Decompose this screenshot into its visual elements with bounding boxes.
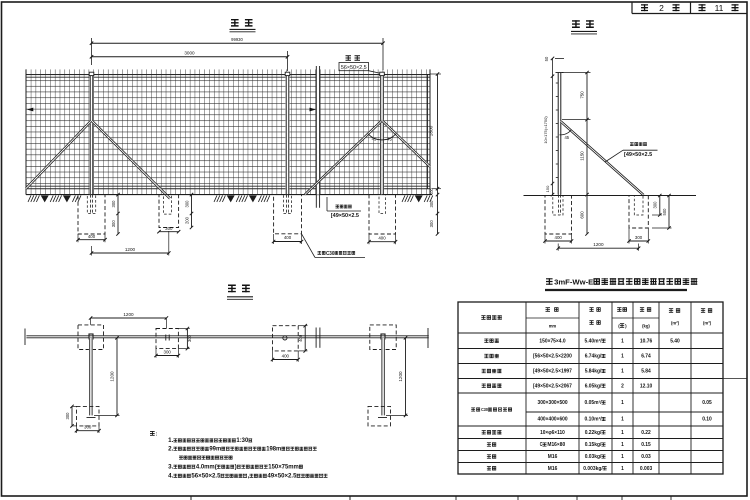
svg-text:mm: mm (549, 323, 557, 328)
svg-text:0.15: 0.15 (641, 442, 651, 448)
svg-text:[49×50×2.5: [49×50×2.5 (331, 213, 359, 219)
svg-text:99930: 99930 (231, 37, 243, 42)
svg-text:1150: 1150 (579, 151, 584, 161)
svg-text:400: 400 (378, 235, 386, 240)
svg-text:1: 1 (621, 417, 624, 423)
svg-text:11: 11 (715, 3, 724, 13)
svg-text:99m: 99m (209, 446, 221, 453)
svg-text:M16: M16 (548, 454, 558, 460)
svg-text:56×50×2.5: 56×50×2.5 (341, 65, 367, 71)
svg-text:1800: 1800 (429, 125, 435, 136)
svg-text:300: 300 (84, 425, 92, 430)
svg-text:300: 300 (635, 235, 643, 240)
svg-text:6.74kg/: 6.74kg/ (585, 354, 602, 360)
svg-text:M16×80: M16×80 (547, 442, 565, 448)
svg-text:1: 1 (621, 339, 624, 345)
svg-text:0.05: 0.05 (702, 400, 712, 406)
svg-text:6.05kg/: 6.05kg/ (585, 384, 602, 390)
svg-text:0.003kg/: 0.003kg/ (583, 466, 603, 472)
svg-text:(kg): (kg) (642, 323, 650, 328)
svg-text:45: 45 (387, 137, 392, 142)
svg-text:0.03kg/: 0.03kg/ (585, 454, 602, 460)
svg-text:300: 300 (184, 200, 189, 208)
svg-text:150×75×4.0: 150×75×4.0 (539, 339, 565, 345)
svg-text:300: 300 (111, 220, 116, 228)
svg-text:10×φ6×110: 10×φ6×110 (540, 430, 565, 436)
svg-text:1200: 1200 (125, 247, 136, 252)
svg-text:5.84kg/: 5.84kg/ (585, 369, 602, 375)
svg-text:0.10: 0.10 (702, 417, 712, 423)
svg-text:1200: 1200 (123, 312, 134, 317)
svg-text:300: 300 (429, 220, 434, 228)
svg-text:[49×50×2.5: [49×50×2.5 (624, 152, 652, 158)
svg-text:,: , (248, 473, 250, 480)
svg-text:1:30: 1:30 (236, 437, 248, 444)
svg-text:300: 300 (65, 412, 70, 420)
svg-text:1200: 1200 (398, 371, 403, 382)
svg-text:56×50×2.5: 56×50×2.5 (191, 473, 221, 480)
svg-text:0.10m³/: 0.10m³/ (585, 417, 603, 423)
svg-text:300×300×500: 300×300×500 (538, 400, 568, 406)
svg-text:12.10: 12.10 (640, 384, 653, 390)
svg-text:0.15kg/: 0.15kg/ (585, 442, 602, 448)
svg-text:4.0mm(: 4.0mm( (196, 464, 218, 471)
svg-text:400: 400 (284, 235, 292, 240)
svg-text:1: 1 (621, 442, 624, 448)
svg-text:49×50×2.5: 49×50×2.5 (267, 473, 297, 480)
svg-text:150×75mm: 150×75mm (268, 464, 299, 471)
svg-text:1: 1 (621, 430, 624, 436)
svg-text:600: 600 (579, 211, 584, 219)
svg-text:400×400×600: 400×400×600 (538, 417, 568, 423)
svg-text:[56×50×2.5×2200: [56×50×2.5×2200 (533, 354, 572, 360)
svg-text:C30: C30 (481, 407, 488, 412)
svg-text:5.40: 5.40 (670, 339, 680, 345)
svg-text:1: 1 (621, 369, 624, 375)
svg-text:400: 400 (88, 234, 96, 239)
svg-text:300: 300 (429, 200, 434, 208)
svg-text:400: 400 (282, 353, 290, 358)
svg-text:200: 200 (184, 216, 189, 224)
svg-text:1.: 1. (168, 437, 173, 444)
svg-text:100: 100 (430, 188, 434, 194)
svg-text:2: 2 (659, 3, 664, 13)
svg-text:3mF-Ww-E: 3mF-Ww-E (554, 277, 593, 286)
svg-text:1: 1 (621, 466, 624, 472)
svg-text:300: 300 (187, 334, 192, 342)
svg-text:0.05m³/: 0.05m³/ (585, 400, 603, 406)
svg-text:2.: 2. (168, 446, 173, 453)
svg-text:0.22: 0.22 (641, 430, 651, 436)
svg-text:[49×50×2.5×2067: [49×50×2.5×2067 (533, 384, 572, 390)
svg-text:198m: 198m (266, 446, 282, 453)
svg-text:750: 750 (579, 91, 584, 99)
svg-text:10.76: 10.76 (640, 339, 653, 345)
svg-text:3000: 3000 (184, 51, 195, 56)
svg-text:300: 300 (653, 201, 658, 209)
svg-text:400: 400 (555, 235, 563, 240)
svg-text:0.22kg/: 0.22kg/ (585, 430, 602, 436)
svg-text:1: 1 (621, 354, 624, 360)
svg-text:(m³): (m³) (703, 320, 712, 325)
svg-text:(m²): (m²) (671, 320, 680, 325)
svg-text:5.84: 5.84 (641, 369, 651, 375)
svg-text:400: 400 (298, 334, 303, 342)
svg-text:3.: 3. (168, 464, 173, 471)
svg-text:): ) (235, 464, 237, 471)
svg-text:1200: 1200 (110, 371, 115, 382)
svg-text:[49×50×2.5×1997: [49×50×2.5×1997 (533, 369, 572, 375)
svg-text:1200: 1200 (593, 242, 604, 247)
svg-text:300: 300 (111, 200, 116, 208)
svg-text:10×175(=1750): 10×175(=1750) (543, 116, 548, 144)
svg-text:5.40m²/: 5.40m²/ (585, 339, 603, 345)
svg-text::: : (156, 431, 158, 437)
svg-text:4.: 4. (168, 473, 173, 480)
svg-text:C30: C30 (326, 251, 334, 257)
svg-text:150: 150 (545, 185, 550, 192)
svg-text:500: 500 (662, 208, 667, 216)
svg-text:1: 1 (621, 454, 624, 460)
svg-text:0.03: 0.03 (641, 454, 651, 460)
svg-text:1: 1 (621, 400, 624, 406)
svg-text:6.74: 6.74 (641, 354, 651, 360)
svg-text:300: 300 (164, 349, 172, 354)
svg-text:0.003: 0.003 (640, 466, 653, 472)
svg-text:50: 50 (544, 56, 549, 61)
svg-text:45: 45 (564, 135, 569, 140)
svg-text:300: 300 (165, 226, 173, 231)
svg-text:45: 45 (372, 137, 377, 142)
svg-text:M16: M16 (548, 466, 558, 472)
svg-text:2: 2 (621, 384, 624, 390)
svg-text:C: C (540, 442, 543, 448)
